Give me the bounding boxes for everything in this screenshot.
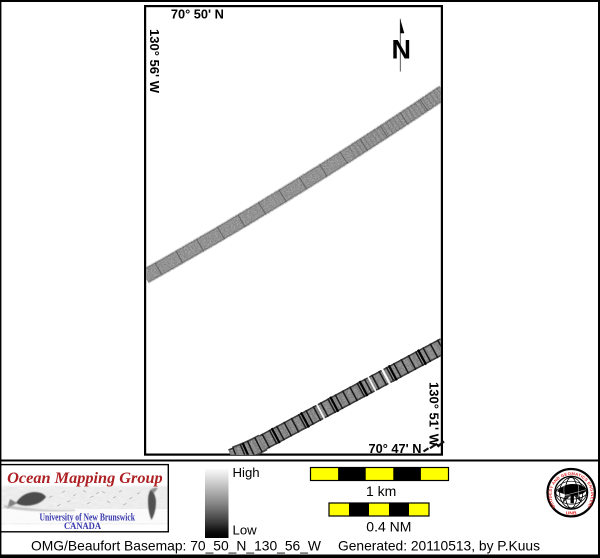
svg-text:OMG/Beaufort Basemap: 70_50_N_: OMG/Beaufort Basemap: 70_50_N_130_56_W (31, 538, 322, 554)
svg-text:1 km: 1 km (366, 483, 396, 499)
svg-text:130° 56' W: 130° 56' W (147, 29, 162, 94)
svg-text:70° 50' N: 70° 50' N (171, 6, 224, 21)
svg-text:70° 47' N: 70° 47' N (369, 441, 422, 456)
svg-text:Ocean Mapping Group: Ocean Mapping Group (7, 470, 163, 487)
svg-text:0.4 NM: 0.4 NM (366, 519, 411, 535)
svg-text:UNB: UNB (566, 511, 577, 517)
svg-text:Generated: 20110513, by P.Kuus: Generated: 20110513, by P.Kuus (338, 538, 540, 554)
svg-text:High: High (233, 465, 260, 480)
svg-text:130° 51' W: 130° 51' W (426, 382, 441, 447)
svg-text:Low: Low (233, 523, 258, 538)
svg-text:N: N (392, 34, 412, 64)
svg-text:CANADA: CANADA (64, 521, 101, 532)
